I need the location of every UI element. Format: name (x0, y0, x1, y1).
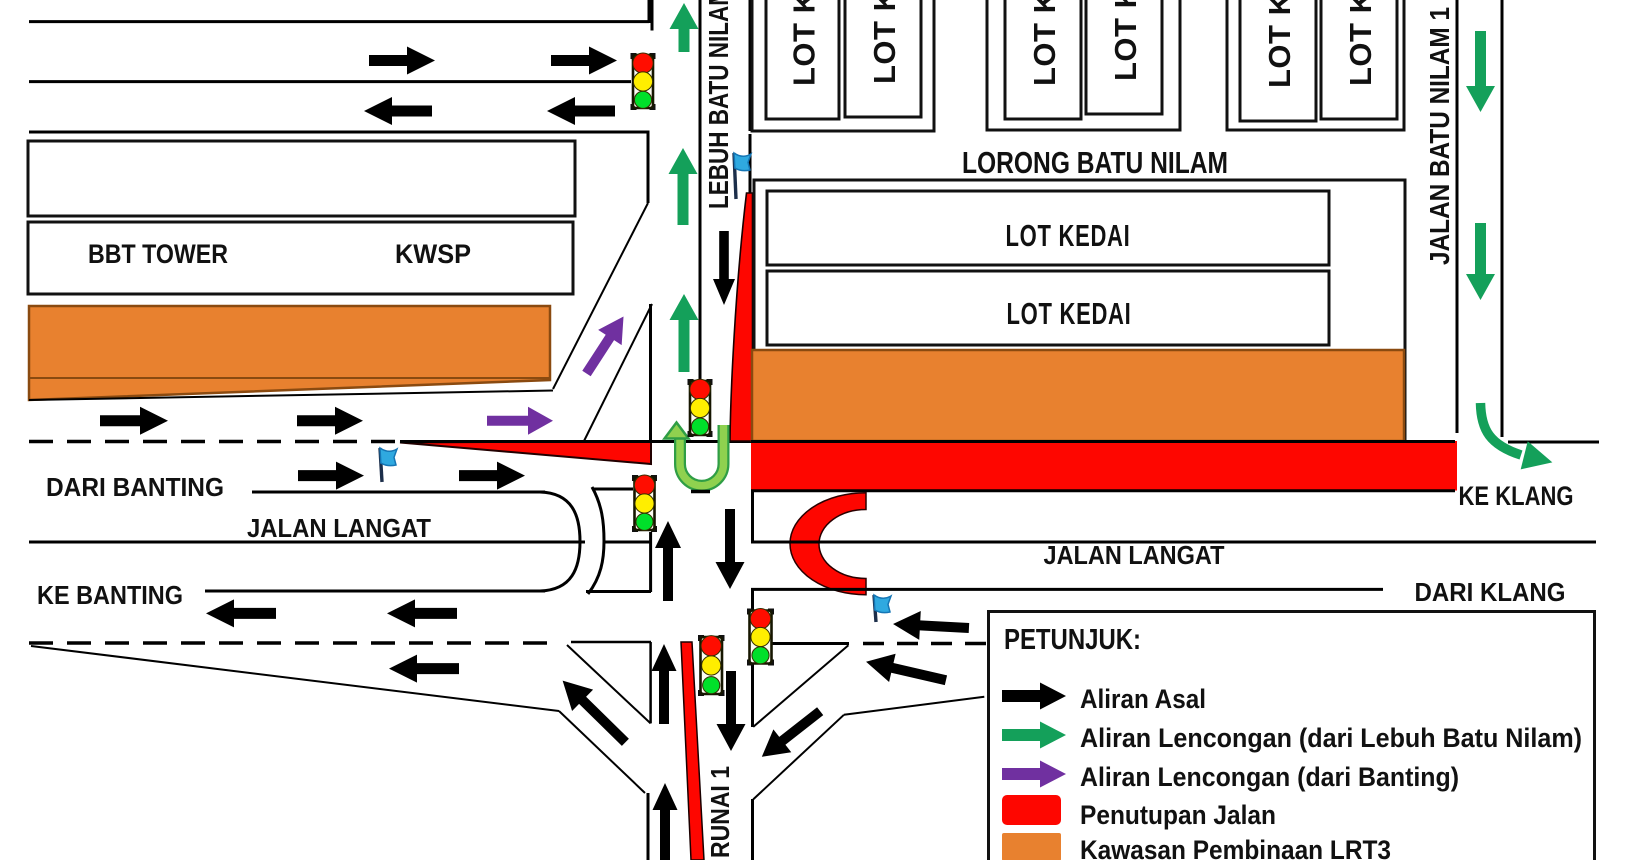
svg-text:LOT KEDAI: LOT KEDAI (867, 0, 902, 84)
svg-text:PETUNJUK:: PETUNJUK: (1004, 624, 1141, 656)
svg-text:BBT TOWER: BBT TOWER (88, 239, 228, 269)
svg-text:LOT KEDAI: LOT KEDAI (1343, 0, 1378, 86)
svg-text:Aliran Lencongan (dari Lebuh B: Aliran Lencongan (dari Lebuh Batu Nilam) (1080, 723, 1582, 753)
svg-text:KE KLANG: KE KLANG (1459, 481, 1574, 511)
svg-text:LOT KEDAI: LOT KEDAI (1262, 0, 1297, 88)
svg-text:LORONG BATU NILAM: LORONG BATU NILAM (962, 145, 1228, 180)
svg-text:JALAN BATU NILAM 1: JALAN BATU NILAM 1 (1424, 7, 1455, 265)
svg-text:LOT KEDAI: LOT KEDAI (787, 0, 822, 86)
svg-text:LOT KEDAI: LOT KEDAI (1006, 218, 1131, 253)
svg-text:DARI KLANG: DARI KLANG (1415, 577, 1566, 607)
svg-text:DARI BANTING: DARI BANTING (46, 472, 224, 502)
svg-text:Kawasan Pembinaan LRT3: Kawasan Pembinaan LRT3 (1080, 835, 1391, 860)
svg-text:Aliran Asal: Aliran Asal (1080, 684, 1206, 714)
svg-text:RUNAI 1: RUNAI 1 (705, 766, 735, 858)
svg-text:Aliran Lencongan (dari Banting: Aliran Lencongan (dari Banting) (1080, 762, 1459, 792)
svg-text:LOT KEDAI: LOT KEDAI (1108, 0, 1143, 81)
svg-text:KWSP: KWSP (395, 239, 471, 269)
svg-text:JALAN LANGAT: JALAN LANGAT (1044, 540, 1225, 570)
svg-text:LEBUH BATU NILAM: LEBUH BATU NILAM (703, 0, 734, 209)
svg-text:LOT KEDAI: LOT KEDAI (1007, 296, 1132, 331)
svg-text:Penutupan Jalan: Penutupan Jalan (1080, 800, 1276, 830)
svg-text:LOT KEDAI: LOT KEDAI (1027, 0, 1062, 86)
svg-text:JALAN LANGAT: JALAN LANGAT (247, 513, 431, 543)
svg-text:KE BANTING: KE BANTING (37, 580, 183, 610)
